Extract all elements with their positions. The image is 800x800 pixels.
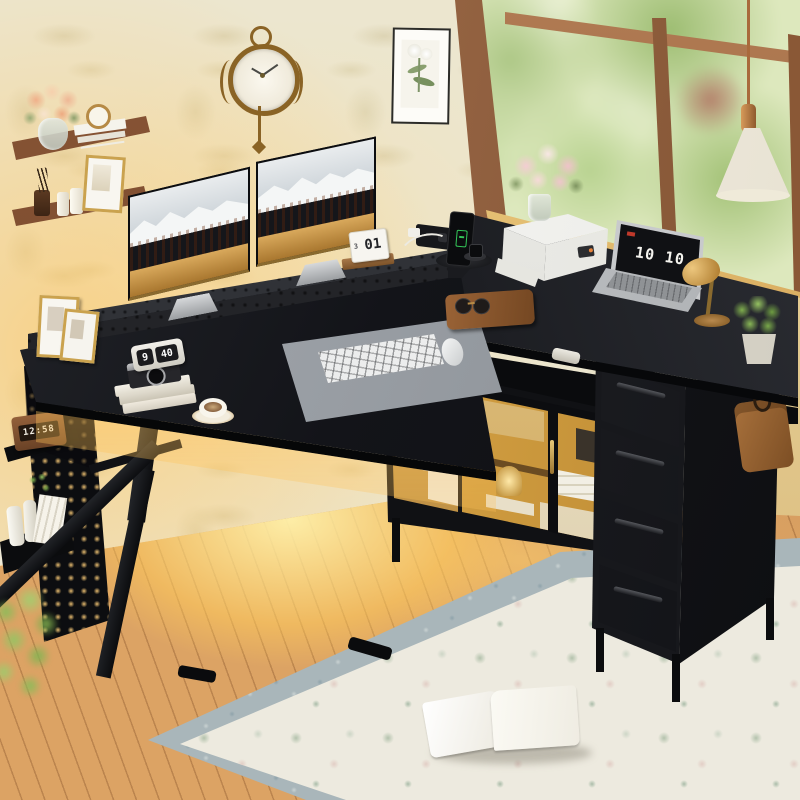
foreground-plant bbox=[0, 588, 82, 728]
lamp-base bbox=[694, 314, 730, 327]
flip-calendar-card: 3 01 bbox=[348, 228, 389, 263]
cabinet-door-handle bbox=[550, 440, 554, 474]
leather-bag bbox=[733, 397, 794, 474]
photo-frame-large-photo bbox=[47, 306, 64, 331]
coffee-cup bbox=[199, 398, 227, 418]
phone-battery-plus bbox=[459, 236, 464, 238]
green-sprig bbox=[28, 474, 50, 500]
botanical-flower-2 bbox=[420, 48, 432, 60]
botanical-leaf-2 bbox=[412, 75, 435, 88]
cabinet-leg-left bbox=[392, 518, 400, 562]
bouquet-vase bbox=[38, 118, 68, 150]
pendant-shade-rim bbox=[716, 189, 790, 202]
calendar-day: 01 bbox=[359, 231, 388, 258]
sunglasses-lens-right bbox=[472, 297, 491, 315]
pendant-cord bbox=[747, 0, 750, 112]
printer-control-panel bbox=[577, 245, 594, 258]
botanical-print-art bbox=[400, 40, 439, 109]
peony-vase bbox=[528, 194, 551, 221]
desk-plant-leaves bbox=[730, 296, 782, 340]
photo-frame-small bbox=[59, 308, 99, 363]
drawer-foot-front bbox=[596, 628, 604, 672]
wall-clock-pendulum-tip bbox=[252, 140, 266, 154]
smartwatch bbox=[469, 244, 483, 258]
gold-alarm-clock bbox=[86, 104, 111, 129]
photo-frame-small-photo bbox=[70, 319, 85, 339]
pendant-cap bbox=[741, 104, 756, 132]
botanical-stem bbox=[418, 58, 421, 92]
candle-1 bbox=[57, 192, 69, 216]
printer-power-light bbox=[589, 248, 594, 253]
wall-clock-center-dot bbox=[260, 73, 265, 78]
shelf-print-sketch bbox=[92, 164, 112, 191]
wall-clock bbox=[222, 26, 298, 156]
reed-diffuser bbox=[34, 190, 50, 216]
sunglasses-lens-left bbox=[454, 297, 473, 315]
product-photo-scene: 12:58 bbox=[0, 0, 800, 800]
open-book-right-page bbox=[490, 685, 580, 751]
drawer-foot-mid bbox=[672, 654, 680, 702]
wall-clock-face bbox=[228, 44, 300, 116]
botanical-flower-1 bbox=[407, 44, 421, 58]
shelf-framed-print bbox=[82, 155, 126, 214]
candle-2 bbox=[70, 188, 83, 214]
botanical-print-frame bbox=[391, 28, 451, 125]
flip-clock-hour: 9 bbox=[136, 348, 155, 367]
drawer-foot-back bbox=[766, 598, 774, 640]
flip-clock-minute: 40 bbox=[155, 344, 179, 364]
coffee-surface bbox=[204, 402, 222, 412]
phone-battery-icon bbox=[455, 230, 467, 248]
